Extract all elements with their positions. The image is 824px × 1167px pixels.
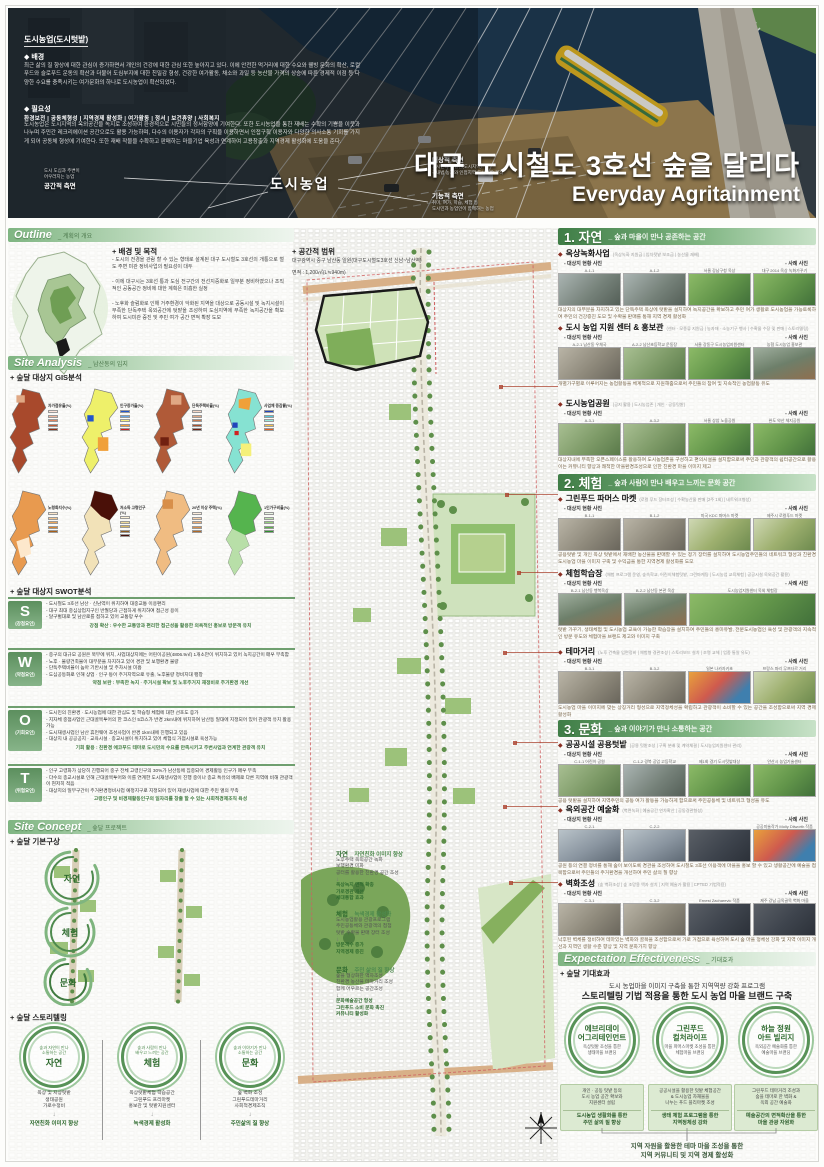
hero-topic-label: 도시농업(도시텃밭) bbox=[24, 34, 88, 47]
hero-need-text: 도시농업은 도시지역의 옥외공간을 녹지로 조성하여 환경적으로 시민들의 정서… bbox=[24, 121, 360, 146]
diamond-icon: ◆ bbox=[558, 649, 563, 656]
case-photo bbox=[753, 903, 816, 936]
outline-scope-title: + 공간적 범위 bbox=[292, 246, 335, 257]
poster: 도시농업(도시텃밭) ◆ 배경 최근 삶의 질 향상에 대한 관심이 증가하면서… bbox=[0, 0, 824, 1167]
item-agri-park: ◆도시농업공원(공지 활용 | 도시농업존 | 개인 · 공동텃밭) - 대상지… bbox=[558, 398, 816, 471]
expectation-box-3: 그린푸드 테마거리 조성과 숲을 테마로 한 벽화 & 옥외 공간 예술화 예술… bbox=[734, 1084, 818, 1131]
item-farmers-market: ◆그린푸드 파머스 마켓(로컬 푸드 장터조성 | 수확농산물 판매 (2주 1… bbox=[558, 493, 816, 566]
diamond-icon: ◆ bbox=[558, 881, 563, 888]
story-cul-name: 문화 bbox=[242, 1056, 259, 1069]
story-cul-items: 숲 벽화 조성 그린푸드테마거리 사회적경제조직 bbox=[204, 1091, 296, 1111]
gis-map: 20년 이상 주택(%) bbox=[152, 484, 222, 584]
concept-strip-maps: 자연체험문화 bbox=[14, 846, 244, 1006]
story-divider bbox=[200, 1040, 201, 1140]
box-text: 개인 · 공동 텃밭 등의 도시 농업 공간 확보와 지원센터 설립 bbox=[563, 1088, 641, 1108]
case-photo bbox=[688, 671, 751, 704]
story-nature-circletext: 숲과 자연이 만나 소통하는 공간 bbox=[39, 1045, 68, 1056]
gis-map: 노령화지수(%) bbox=[8, 484, 78, 584]
concept-note-experience: 체험 _ 녹색경제 활성화 도시농업활용 관광프로그램 주민공동체와 관광객의 … bbox=[336, 908, 556, 956]
diamond-icon: ◆ bbox=[558, 496, 563, 503]
site-photo bbox=[558, 273, 621, 306]
connector-line bbox=[508, 494, 558, 495]
case-photo bbox=[688, 903, 751, 936]
site-photo bbox=[623, 903, 686, 936]
concept-note-nature: 자연 _ 자연친화 이미지 향상 노후주택 옥외공간 녹화 보행환경 미화 공터… bbox=[336, 848, 556, 903]
story-culture: 숲과 이야기가 만나 소통하는 공간 문화 숲 벽화 조성 그린푸드테마거리 사… bbox=[204, 1026, 296, 1127]
connector-line bbox=[506, 806, 558, 807]
brand-name: 에브리데이 어그리테인먼트 bbox=[578, 1024, 626, 1042]
expectation-box-1: 개인 · 공동 텃밭 등의 도시 농업 공간 확보와 지원센터 설립 도시농업 … bbox=[560, 1084, 644, 1131]
item-desc: 도시농업 마을 이미지에 맞는 상징거리 형성으로 지역정체성을 확립하고 관광… bbox=[558, 706, 816, 719]
site-scope-map bbox=[296, 278, 446, 378]
story-cul-result: 주민삶의 질 향상 bbox=[204, 1119, 296, 1127]
brand-circle: 에브리데이 어그리테인먼트 옥상텃밭 조성을 통한 생태마을 브랜딩 bbox=[568, 1006, 636, 1074]
outline-goal-title: + 배경 및 목적 bbox=[112, 246, 157, 257]
gis-map: 저소득 고령인구(%) bbox=[80, 484, 150, 584]
site-photo bbox=[623, 764, 686, 797]
item-desc: 개별가구별로 이루어지는 농업활동을 체계적으로 지원해줌으로써 주민들의 참여… bbox=[558, 382, 816, 389]
svg-text:체험: 체험 bbox=[62, 927, 79, 938]
outline-goal-text: - 도시의 전경을 관람 할 수 있는 형태로 설계된 대구 도시철도 3호선의… bbox=[112, 257, 284, 322]
concept-header-en: Site Concept bbox=[14, 821, 81, 833]
item-public-garden: ◆공공시설 공용텃밭(공용 텃밭조성 | 구획 분배 및 계약체결 | 도시농업… bbox=[558, 739, 816, 806]
story-divider bbox=[102, 1040, 103, 1140]
story-exp-name: 체험 bbox=[144, 1056, 161, 1069]
diamond-icon: ◆ bbox=[558, 742, 563, 749]
svg-text:자연: 자연 bbox=[64, 873, 81, 884]
box-result: 예술공간의 면적확산을 통한 마을 관광 자원화 bbox=[737, 1110, 815, 1127]
box-result: 생태 체험 프로그램을 통한 지역정체성 강화 bbox=[651, 1110, 729, 1127]
down-arrow-icon: ↓ bbox=[106, 1112, 198, 1118]
section-header-concept: Site Concept _ 숲달 프로젝트 bbox=[8, 820, 294, 834]
site-photo bbox=[558, 423, 621, 456]
swot-o-items: - 도시민의 친환경 · 도시농업에 대한 관심도 및 학습형 체험에 대한 선… bbox=[46, 710, 295, 743]
brand-name: 하늘 정원 아트 빌리지 bbox=[758, 1024, 795, 1042]
item-desc: 대상지내에 부족한 오픈스페이스를 활용하여 도시농업존을 구성하고 편의시설을… bbox=[558, 458, 816, 471]
item-rooftop-greening: ◆옥상녹화사업(옥상녹화 지원금 | 임차텃밭 보조금 | 농산물 재배) - … bbox=[558, 248, 816, 321]
case-photo bbox=[753, 764, 816, 797]
swot-letter-s: S(강점요인) bbox=[8, 601, 42, 629]
site-photo bbox=[623, 518, 686, 551]
swot-letter-w: W(약점요인) bbox=[8, 652, 42, 686]
connector-line bbox=[516, 742, 558, 743]
section-header-outline: Outline _ 계획의 개요 bbox=[8, 228, 294, 242]
story-exp-circletext: 숲과 사람이 만나 배우고 느끼는 공간 bbox=[135, 1045, 168, 1056]
connector-line bbox=[506, 652, 558, 653]
expectation-footer: 지역 자원을 활용한 테마 마을 조성을 통한 지역 커뮤니티 및 지역 경제 … bbox=[558, 1142, 816, 1160]
story-nature-result: 자연친화 이미지 향상 bbox=[8, 1119, 100, 1127]
gis-map: 자가점유율(%) bbox=[8, 382, 78, 482]
item-theme-street: ◆테마거리(노후 건축물 입면정비 | 체험형 경관조성 | 스토리보드 설치 … bbox=[558, 646, 816, 719]
diamond-icon: ◆ bbox=[558, 401, 563, 408]
brand-sub: 옥외공간 예술화를 통한 예술마을 브랜딩 bbox=[755, 1044, 797, 1055]
swot-o-summary: 기회 활용 : 친환경 에코푸드 테마로 도시민의 수요를 만족시키고 주변사업… bbox=[46, 744, 295, 751]
case-photo bbox=[753, 829, 816, 862]
hero-banner: 도시농업(도시텃밭) ◆ 배경 최근 삶의 질 향상에 대한 관심이 증가하면서… bbox=[8, 8, 816, 218]
poster-subtitle: Everyday Agritainment bbox=[414, 183, 800, 207]
concept-exp-name: 체험 bbox=[336, 911, 348, 918]
concept-nature-inputs: 노후주택 옥외공간 녹화 보행환경 미화 공터를 활용한 친환경 공간 조성 bbox=[336, 858, 556, 877]
site-photo bbox=[558, 829, 621, 862]
site-photo bbox=[558, 347, 621, 380]
diagram-left-label: 공간적 측면 bbox=[44, 180, 80, 190]
site-photo bbox=[624, 593, 688, 626]
gis-map: 단독주택비율(%) bbox=[152, 382, 222, 482]
case-photo bbox=[753, 423, 816, 456]
concept-header-ko: _ 숲달 프로젝트 bbox=[87, 823, 127, 832]
hero-background-text: 최근 삶의 질 향상에 대한 관심이 증가하면서 개인의 건강에 대한 관심 또… bbox=[24, 62, 360, 87]
expectation-title: + 숲달 기대효과 bbox=[560, 968, 610, 979]
swot-title: + 숲달 대상지 SWOT분석 bbox=[10, 586, 91, 597]
case-photo bbox=[688, 347, 751, 380]
swot-threat: T(위협요인) - 인구 고령화가 상당히 진행되어 중구 전체 고령인구의 3… bbox=[8, 764, 295, 802]
case-photo bbox=[753, 671, 816, 704]
item-desc: 낙후된 벽체를 정비하여 테마있는 벽화와 골목을 조성함으로써 가로 거점으로… bbox=[558, 938, 816, 951]
brand-sub: 마을 파머스마켓 조성을 통한 체험마을 브랜딩 bbox=[664, 1044, 715, 1055]
story-exp-result: 녹색경제 활성화 bbox=[106, 1119, 198, 1127]
case-photo bbox=[688, 273, 751, 306]
concept-exp-outputs: 방문객수 증가 지역경제 증진 bbox=[336, 943, 556, 956]
poster-title: 대구 도시철도 3호선 숲을 달리다 bbox=[414, 144, 800, 183]
brand-circle: 그린푸드 컬처라이프 마을 파머스마켓 조성을 통한 체험마을 브랜딩 bbox=[656, 1006, 724, 1074]
site-photo bbox=[623, 347, 686, 380]
site-photo bbox=[623, 423, 686, 456]
expectation-box-2: 공공시설을 활용한 텃밭 체험공간 & 도시농업 자재물을 나누는 푸드 플리마… bbox=[648, 1084, 732, 1131]
section-header-expectation: Expectation Effectiveness _ 기대효과 bbox=[558, 952, 816, 966]
gis-map: 사업체 증감률(%) bbox=[224, 382, 294, 482]
case-photo bbox=[688, 423, 751, 456]
expectation-line2: 스토리텔링 기법 적용을 통한 도시 농업 마을 브랜드 구축 bbox=[558, 989, 816, 1002]
connector-line bbox=[520, 572, 558, 573]
brand-sub: 옥상텃밭 조성을 통한 생태마을 브랜딩 bbox=[583, 1044, 621, 1055]
story-exp-items: 옥상텃밭체험 학습공간 그린푸드 프리마켓 홍보관 및 텃밭지원센터 bbox=[106, 1091, 198, 1111]
svg-text:문화: 문화 bbox=[60, 977, 77, 988]
gis-map: 인구증가율(%) bbox=[80, 382, 150, 482]
connector-line bbox=[502, 386, 558, 387]
site-photo bbox=[558, 764, 621, 797]
analysis-header-ko: _ 남산동의 입지 bbox=[88, 359, 128, 368]
swot-opportunity: O(기회요인) - 도시민의 친환경 · 도시농업에 대한 관심도 및 학습형 … bbox=[8, 706, 295, 751]
box-text: 공공시설을 활용한 텃밭 체험공간 & 도시농업 자재물을 나누는 푸드 플리마… bbox=[651, 1088, 729, 1108]
site-photo bbox=[558, 593, 622, 626]
diagram-left-node: 도시 도심과 주변이 어우러지는 농업 공간적 측면 bbox=[44, 168, 80, 190]
diagram-center-label: 도시농업 bbox=[270, 174, 330, 194]
story-cul-circletext: 숲과 이야기가 만나 소통하는 공간 bbox=[233, 1045, 266, 1056]
diamond-icon: ◆ bbox=[558, 571, 563, 578]
brand-artvillage: 하늘 정원 아트 빌리지 옥외공간 예술화를 통한 예술마을 브랜딩 bbox=[734, 1006, 818, 1074]
swot-w-items: - 중구의 대규모 공원은 북부에 위치, 사업대상지에는 어린이공원(4806… bbox=[46, 652, 295, 678]
site-photo bbox=[558, 518, 621, 551]
poster-title-block: 대구 도시철도 3호선 숲을 달리다 Everyday Agritainment bbox=[414, 144, 800, 207]
diamond-icon: ◆ bbox=[558, 325, 563, 332]
concept-cul-name: 문화 bbox=[336, 967, 348, 974]
down-arrow-icon: ↓ bbox=[8, 1112, 100, 1118]
story-nature-circle: 숲과 자연이 만나 소통하는 공간 자연 bbox=[23, 1026, 85, 1088]
case-photo bbox=[753, 347, 816, 380]
brand-greenfood: 그린푸드 컬처라이프 마을 파머스마켓 조성을 통한 체험마을 브랜딩 bbox=[648, 1006, 732, 1074]
case-photo bbox=[688, 829, 751, 862]
hero-need-title: ◆ 필요성 bbox=[24, 104, 51, 114]
case-photo bbox=[688, 518, 751, 551]
brand-circle: 하늘 정원 아트 빌리지 옥외공간 예술화를 통한 예술마을 브랜딩 bbox=[742, 1006, 810, 1074]
item-outdoor-art: ◆옥외공간 예술화(벽면녹화 | 예술공간 연차확산 | 공동경관형성) - 대… bbox=[558, 804, 816, 877]
item-desc: 텃밭 가꾸기, 생태체험 및 도시농업 교육이 가능한 학습장을 설치하여 주민… bbox=[558, 628, 816, 641]
site-photo bbox=[623, 273, 686, 306]
outline-scope-line2: 면적 : 1,200㎡(L≒940m) bbox=[292, 269, 462, 276]
analysis-header-en: Site Analysis bbox=[14, 357, 82, 369]
swot-t-items: - 인구 고령화가 상당히 진행되어 중구 전체 고령인구의 30%가 남산동에… bbox=[46, 768, 295, 794]
section-header-analysis: Site Analysis _ 남산동의 입지 bbox=[8, 356, 294, 370]
item-learning-field: ◆체험학습장(체험 프로그램 운영, 숲속학교, 어린이체험텃밭, 그린마케팅 … bbox=[558, 568, 816, 641]
story-exp-circle: 숲과 사람이 만나 배우고 느끼는 공간 체험 bbox=[121, 1026, 183, 1088]
box-result: 도시농업 생활화를 통한 주민 삶의 질 향상 bbox=[563, 1110, 641, 1127]
box-text: 그린푸드 테마거리 조성과 숲을 테마로 한 벽화 & 옥외 공간 예술화 bbox=[737, 1088, 815, 1108]
swot-strength: S(강점요인) - 도시철도 3호선 남산 · 신남역이 위치하여 대중교통 이… bbox=[8, 597, 295, 629]
section-header-experience: 2. 체험 _ 숲과 사람이 만나 배우고 느끼는 문화 공간 bbox=[558, 474, 816, 491]
story-nature-items: 옥상 및 지상텃밭 생태공원 가로수정비 bbox=[8, 1091, 100, 1111]
case-photo bbox=[753, 273, 816, 306]
connector-line bbox=[512, 882, 558, 883]
story-nature: 숲과 자연이 만나 소통하는 공간 자연 옥상 및 지상텃밭 생태공원 가로수정… bbox=[8, 1026, 100, 1127]
gis-map: 1인가구비율(%) bbox=[224, 484, 294, 584]
item-desc: 공원 등의 연결 정비를 통해 숲이 보이도록 경관을 조성하여 도시철도 3호… bbox=[558, 864, 816, 877]
diamond-icon: ◆ bbox=[558, 251, 563, 258]
concept-nature-outputs: 옥상녹지 면적 확충 가로경관 개선 세대통합 효과 bbox=[336, 883, 556, 902]
swot-s-summary: 강점 확산 : 우수한 교통망과 편리한 접근성을 활용한 의욕적인 홍보로 방… bbox=[46, 622, 295, 629]
outline-header-ko: _ 계획의 개요 bbox=[58, 231, 92, 240]
brand-agritainment: 에브리데이 어그리테인먼트 옥상텃밭 조성을 통한 생태마을 브랜딩 bbox=[560, 1006, 644, 1074]
item-desc: 대상지의 대부분을 차지하고 있는 단독주택 옥상에 텃밭을 설치하여 녹지공간… bbox=[558, 308, 816, 321]
swot-weakness: W(약점요인) - 중구의 대규모 공원은 북부에 위치, 사업대상지에는 어린… bbox=[8, 648, 295, 686]
gis-map-grid: 자가점유율(%) 인구증가율(%) 단독주택비율(%) 사업체 증감률(%) 노… bbox=[8, 382, 294, 584]
story-experience: 숲과 사람이 만나 배우고 느끼는 공간 체험 옥상텃밭체험 학습공간 그린푸드… bbox=[106, 1026, 198, 1127]
case-photo bbox=[689, 593, 816, 626]
site-photo bbox=[623, 671, 686, 704]
site-photo bbox=[558, 903, 621, 936]
case-photo bbox=[753, 518, 816, 551]
swot-w-summary: 약점 보완 : 부족한 녹지 · 주거시설 확보 및 노후주거지 재정비로 주거… bbox=[46, 679, 295, 686]
culture-tagline: _ 숲과 이야기가 만나 소통하는 공간 bbox=[608, 724, 712, 734]
brand-name: 그린푸드 컬처라이프 bbox=[673, 1024, 708, 1042]
expectation-header-en: Expectation Effectiveness bbox=[564, 953, 700, 965]
site-photo bbox=[558, 671, 621, 704]
outline-scope-line1: 대구광역시 중구 남산동 일원(대구도시철도3호선 신남~남산역) bbox=[292, 257, 462, 264]
expectation-header-ko: _ 기대효과 bbox=[706, 955, 733, 964]
swot-letter-t: T(위협요인) bbox=[8, 768, 42, 802]
down-arrow-icon: ↓ bbox=[204, 1112, 296, 1118]
nature-tagline: _ 숲과 마을이 만나 공존하는 공간 bbox=[608, 232, 705, 242]
case-photo bbox=[688, 764, 751, 797]
swot-letter-o: O(기회요인) bbox=[8, 710, 42, 751]
diagram-left-text: 도시 도심과 주변이 어우러지는 농업 bbox=[44, 168, 80, 180]
diamond-icon: ◆ bbox=[558, 807, 563, 814]
story-title: + 숲달 스토리텔링 bbox=[10, 1012, 67, 1023]
item-mural: ◆벽화조성(숲 벽화조성 | 숲 조망용 액자 설치 | 지역 예술가 활용 |… bbox=[558, 878, 816, 951]
converge-lines bbox=[558, 1128, 816, 1142]
swot-s-items: - 도시철도 3호선 남산 · 신남역이 위치하여 대중교통 이용편리 - 대구… bbox=[46, 601, 295, 621]
concept-exp-inputs: 도시농업활용 관광프로그램 주민공동체와 관광객의 접점 텃밭 수확물 판매 장… bbox=[336, 918, 556, 937]
experience-tagline: _ 숲과 사람이 만나 배우고 느끼는 문화 공간 bbox=[608, 478, 735, 488]
item-desc: 공용텃밭 및 개인 옥상 텃밭에서 재배한 농산물을 판매할 수 있는 정기 장… bbox=[558, 553, 816, 566]
concept-cul-inputs: 숲을 형상화한 액자조성 친환경 농산물 테마거리 조성 함께 어우르는 공간조… bbox=[336, 974, 556, 993]
swot-t-summary: 고령인구 및 비경제활동인구의 일자리를 창출 할 수 있는 사회적경제조직 육… bbox=[46, 795, 295, 802]
hero-background-title: ◆ 배경 bbox=[24, 52, 44, 62]
section-header-culture: 3. 문화 _ 숲과 이야기가 만나 소통하는 공간 bbox=[558, 720, 816, 737]
story-cul-circle: 숲과 이야기가 만나 소통하는 공간 문화 bbox=[219, 1026, 281, 1088]
outline-header-en: Outline bbox=[14, 229, 52, 241]
concept-nature-name: 자연 bbox=[336, 851, 348, 858]
story-nature-name: 자연 bbox=[46, 1056, 63, 1069]
site-photo bbox=[623, 829, 686, 862]
section-header-nature: 1. 자연 _ 숲과 마을이 만나 공존하는 공간 bbox=[558, 228, 816, 245]
concept-cul-outputs: 문화예술공간 형성 그린푸드 소비 문화 촉진 커뮤니티 활성화 bbox=[336, 999, 556, 1018]
item-support-center: ◆도시 농업 지원 센터 & 홍보관(센터 · 모종류 지원금 | 농자재 · … bbox=[558, 322, 816, 389]
concept-note-culture: 문화 _ 주민 삶의 질 향상 숲을 형상화한 액자조성 친환경 농산물 테마거… bbox=[336, 964, 556, 1019]
